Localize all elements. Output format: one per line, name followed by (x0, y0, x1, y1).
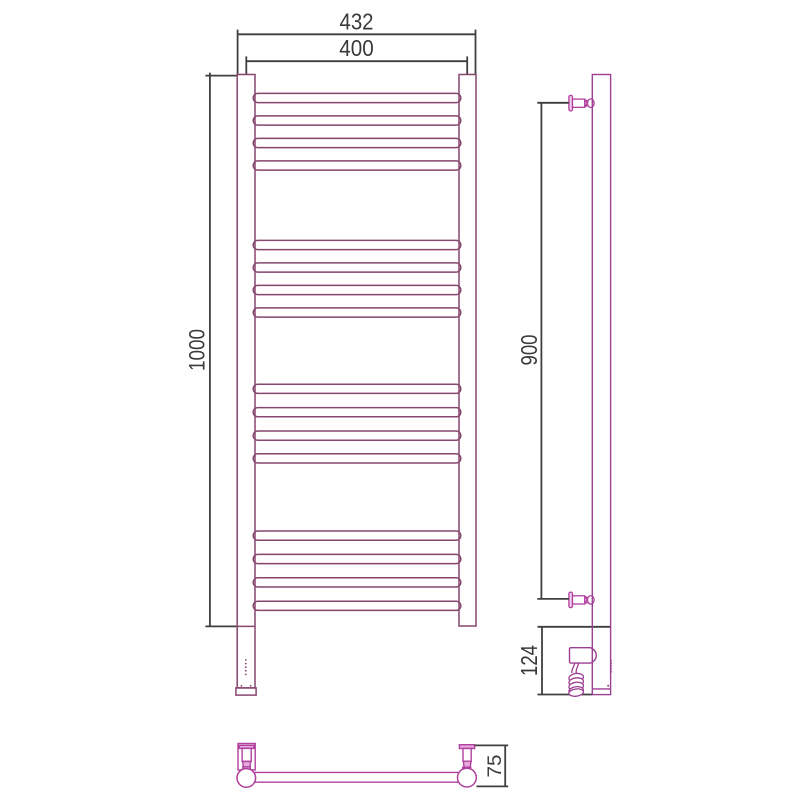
svg-text:1000: 1000 (185, 329, 210, 371)
svg-text:400: 400 (339, 35, 374, 61)
svg-text:432: 432 (340, 8, 374, 34)
svg-text:75: 75 (484, 754, 506, 777)
svg-text:900: 900 (516, 335, 542, 366)
svg-text:124: 124 (516, 645, 542, 676)
